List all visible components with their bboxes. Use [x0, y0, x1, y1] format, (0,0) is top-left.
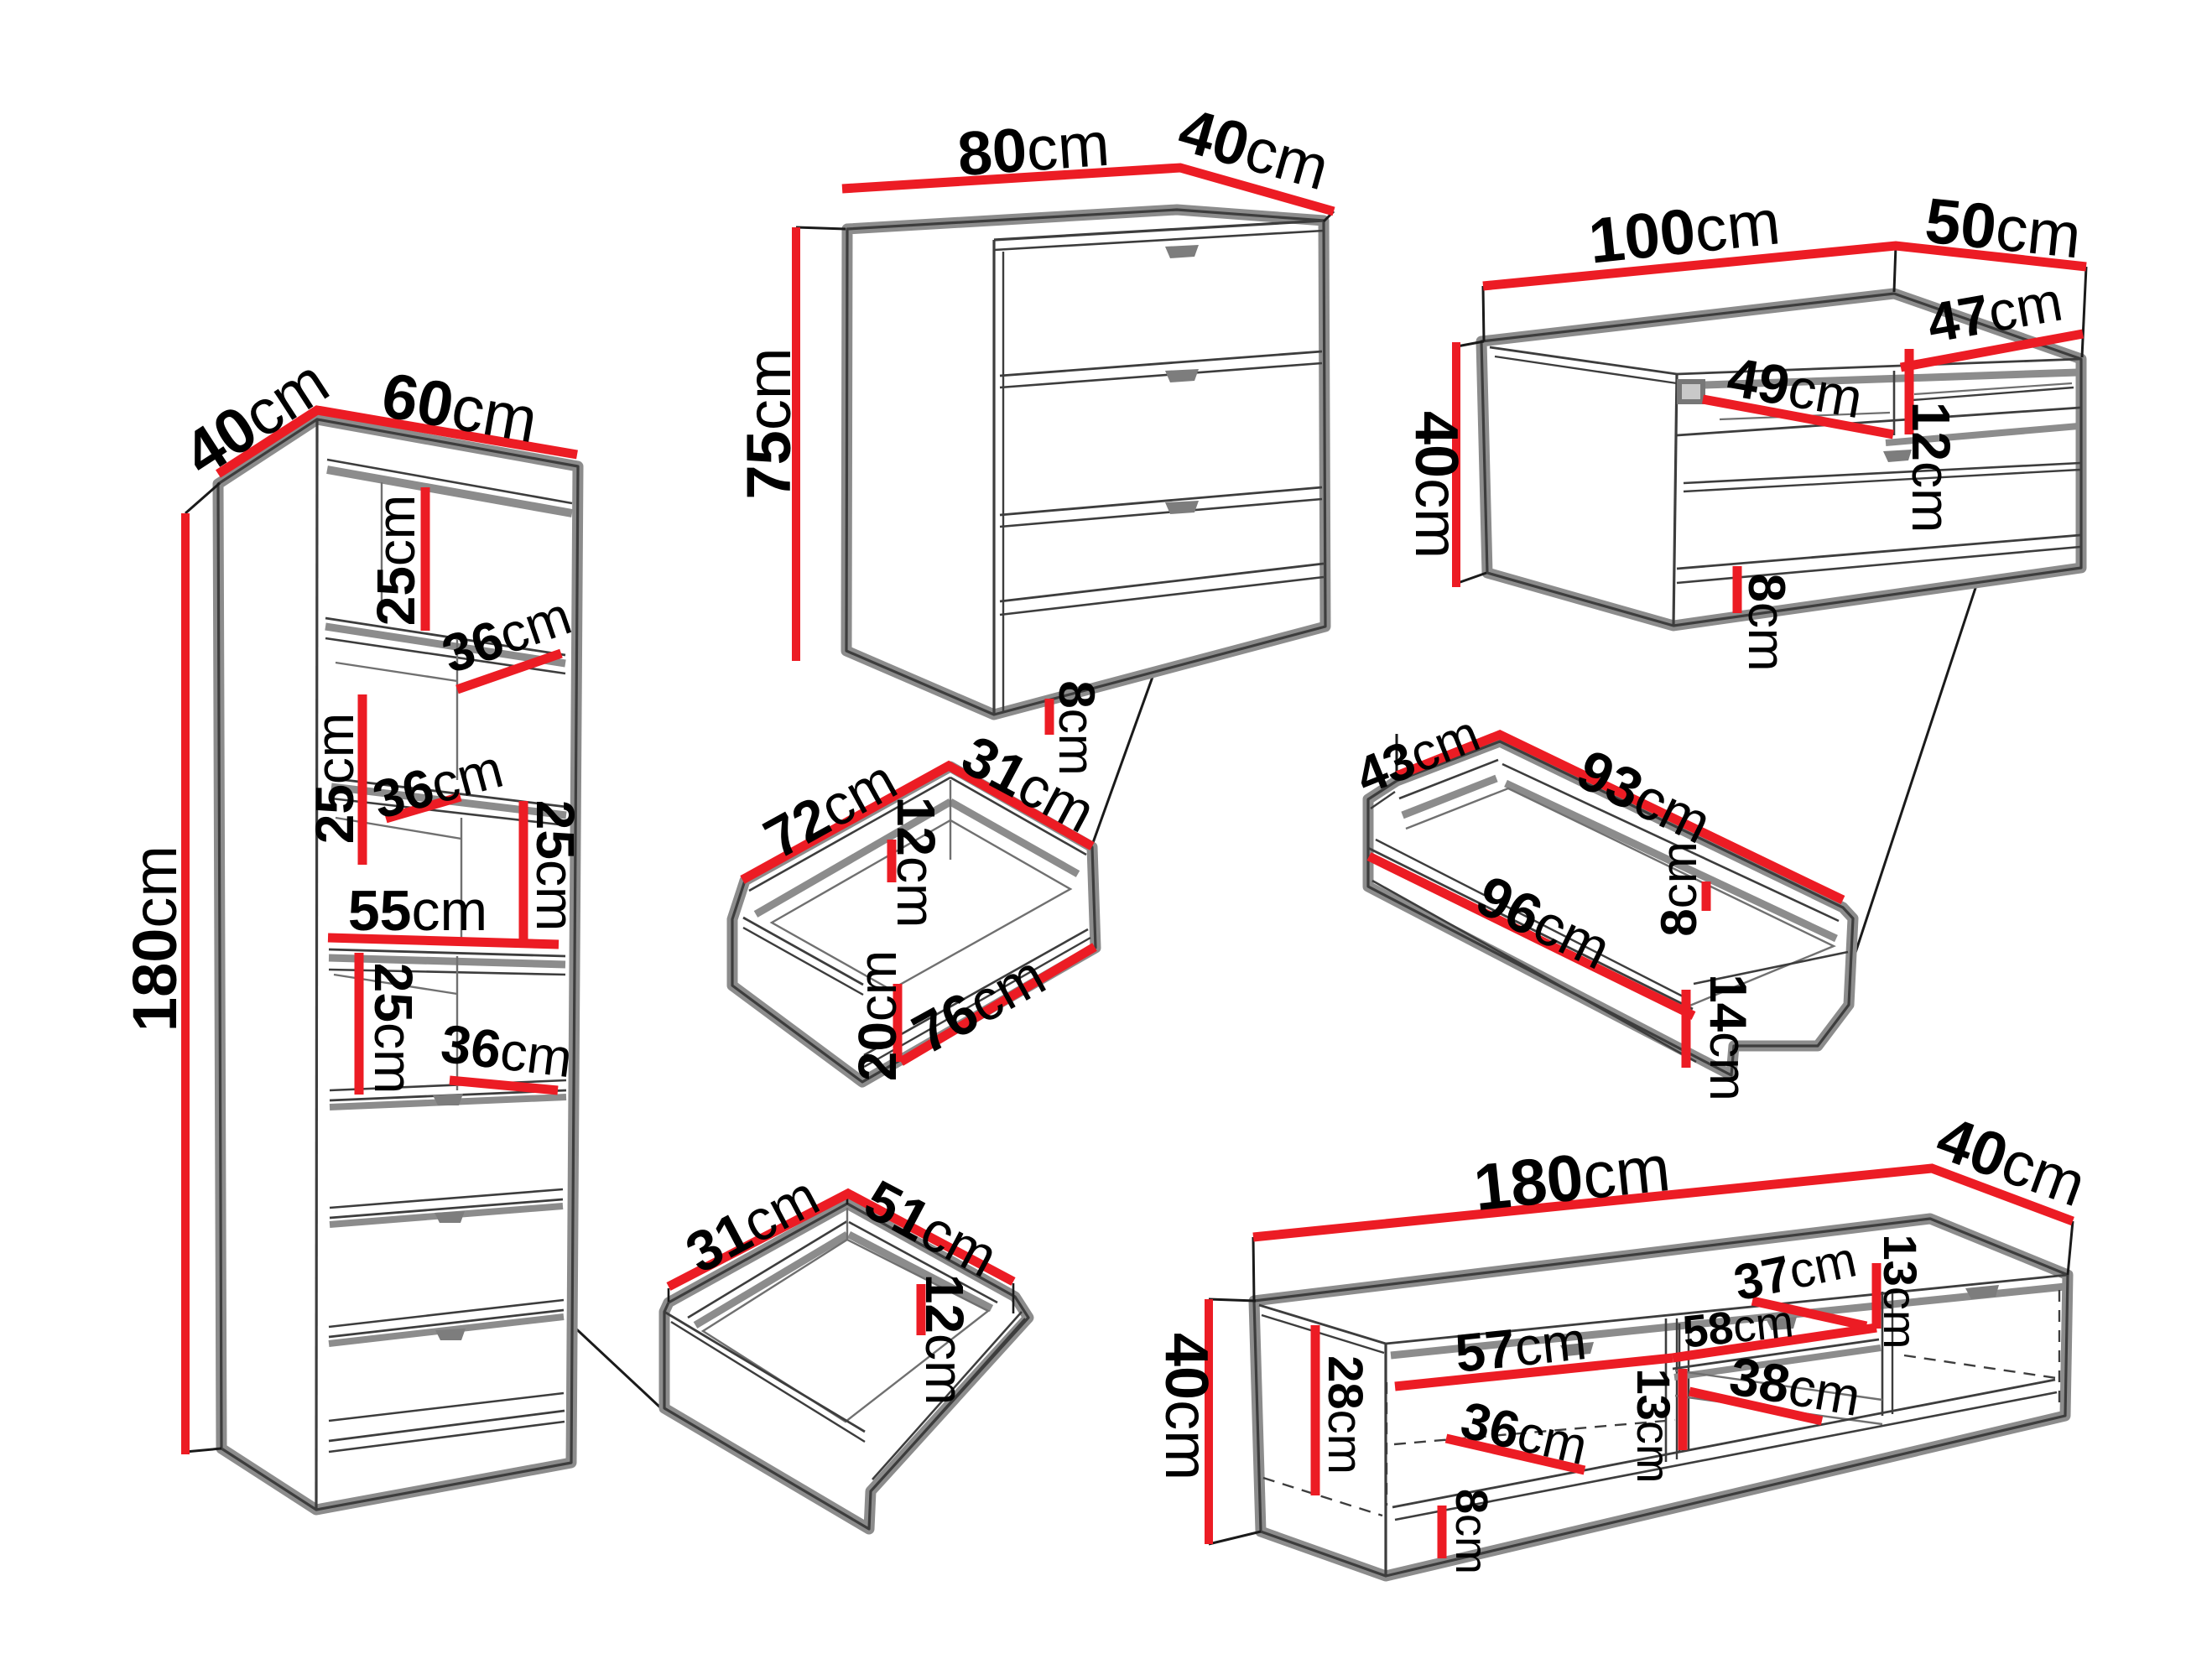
svg-text:14cm: 14cm	[1699, 974, 1757, 1101]
svg-text:75cm: 75cm	[734, 348, 804, 500]
svg-text:25cm: 25cm	[304, 713, 365, 845]
svg-text:28cm: 28cm	[1319, 1355, 1373, 1474]
svg-text:8cm: 8cm	[1049, 680, 1106, 775]
svg-text:20cm: 20cm	[847, 950, 908, 1082]
svg-text:8cm: 8cm	[1446, 1489, 1496, 1574]
svg-text:12cm: 12cm	[886, 797, 946, 928]
svg-text:80cm: 80cm	[955, 108, 1111, 188]
svg-text:13cm: 13cm	[1628, 1369, 1681, 1484]
svg-text:40cm: 40cm	[1153, 1333, 1220, 1480]
svg-text:12cm: 12cm	[914, 1274, 975, 1406]
svg-text:8cm: 8cm	[1651, 841, 1707, 936]
svg-text:25cm: 25cm	[366, 495, 426, 627]
svg-text:25cm: 25cm	[525, 800, 586, 932]
svg-text:8cm: 8cm	[1738, 573, 1796, 671]
svg-text:13cm: 13cm	[1875, 1235, 1928, 1350]
svg-text:12cm: 12cm	[1901, 402, 1961, 533]
svg-text:180cm: 180cm	[120, 845, 190, 1032]
svg-text:40cm: 40cm	[1403, 411, 1470, 559]
svg-text:25cm: 25cm	[363, 963, 424, 1095]
svg-text:55cm: 55cm	[348, 879, 487, 943]
